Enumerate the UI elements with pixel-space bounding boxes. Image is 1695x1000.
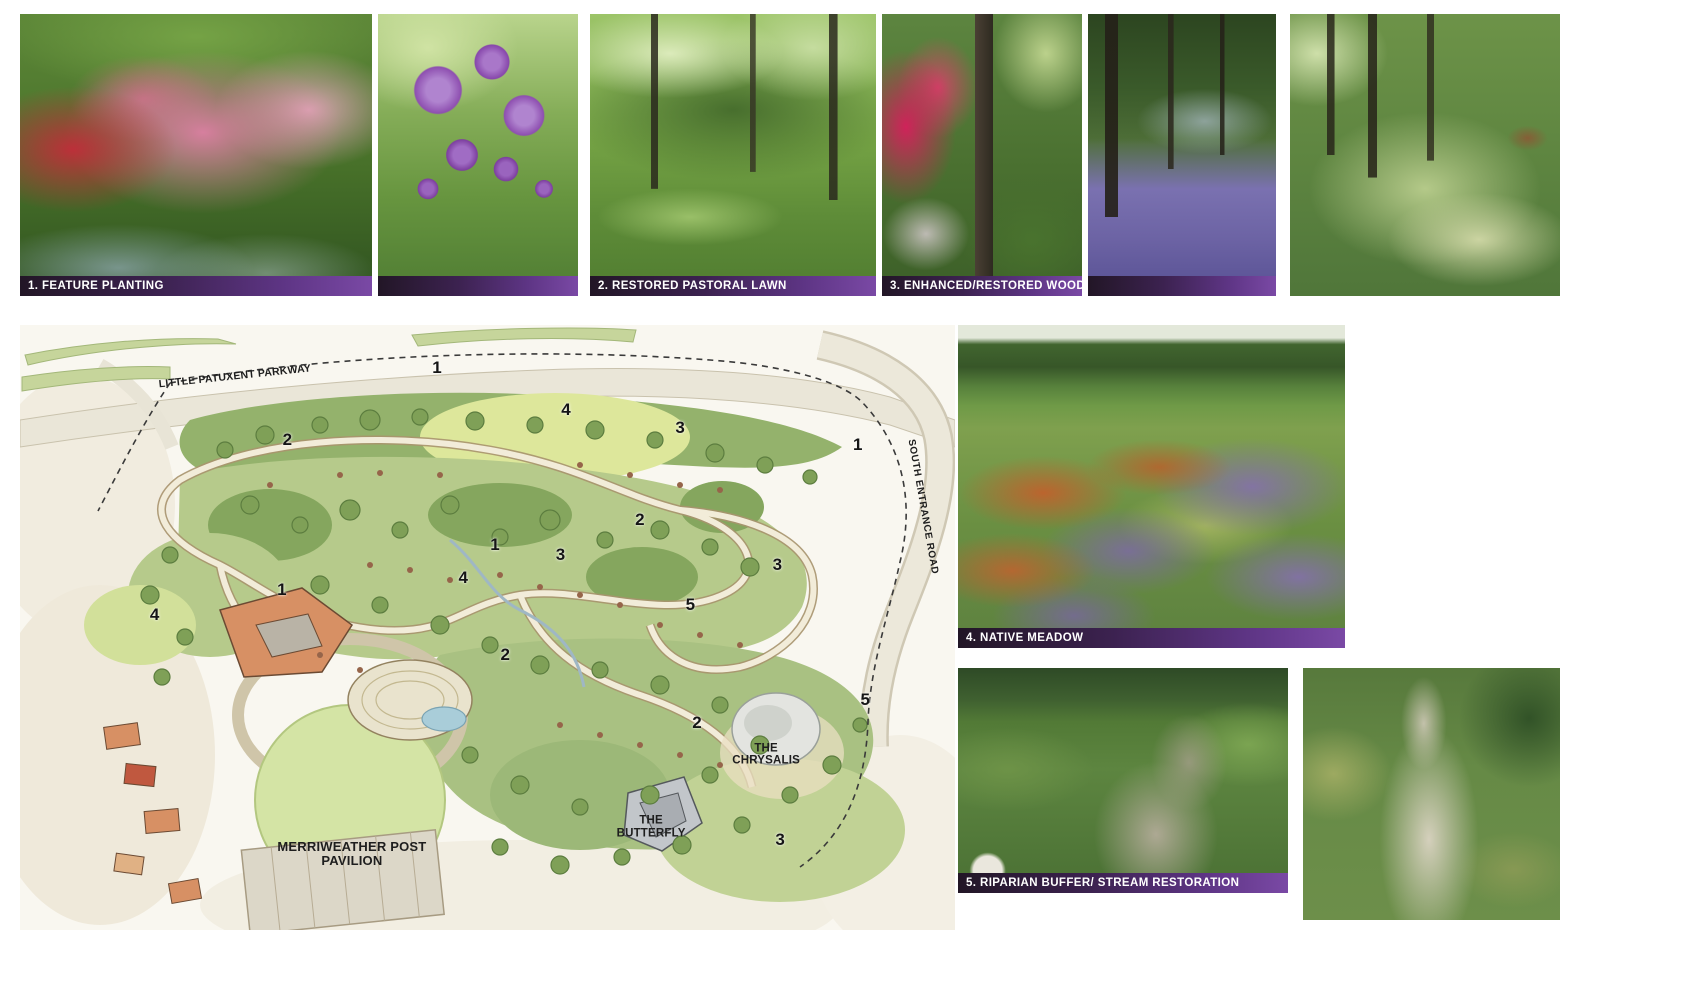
caption-native-meadow: 4. NATIVE MEADOW [958, 628, 1345, 648]
photo-allium [378, 14, 578, 296]
caption-woodland: 3. ENHANCED/RESTORED WOODLAND [882, 276, 1082, 296]
zone-marker: 2 [635, 510, 644, 530]
zone-marker: 3 [675, 418, 684, 438]
presentation-board: 1. FEATURE PLANTING 2. RESTORED PASTORAL… [0, 0, 1695, 1000]
photo-woodland: 3. ENHANCED/RESTORED WOODLAND [882, 14, 1082, 296]
zone-marker: 4 [561, 400, 570, 420]
zone-marker: 3 [556, 545, 565, 565]
photo-bluebell [1088, 14, 1276, 296]
zone-marker: 1 [432, 358, 441, 378]
zone-marker: 1 [490, 535, 499, 555]
site-plan: LITTLE PATUXENT PARKWAY SOUTH ENTRANCE R… [20, 325, 955, 930]
photo-stream-restoration [1303, 668, 1560, 920]
label-butterfly: THE BUTTERFLY [611, 815, 691, 840]
caption-riparian: 5. RIPARIAN BUFFER/ STREAM RESTORATION [958, 873, 1288, 893]
photo-feature-planting: 1. FEATURE PLANTING [20, 14, 372, 296]
zone-marker: 4 [458, 568, 467, 588]
zone-marker: 2 [501, 645, 510, 665]
zone-marker: 5 [686, 595, 695, 615]
zone-marker: 2 [283, 430, 292, 450]
zone-marker: 5 [861, 690, 870, 710]
zone-marker: 3 [775, 830, 784, 850]
zone-marker: 1 [853, 435, 862, 455]
photo-native-meadow: 4. NATIVE MEADOW [958, 325, 1345, 648]
zone-marker: 3 [773, 555, 782, 575]
caption-bluebell [1088, 276, 1276, 296]
zone-marker: 4 [150, 605, 159, 625]
zone-marker: 2 [692, 713, 701, 733]
photo-pastoral-lawn: 2. RESTORED PASTORAL LAWN [590, 14, 876, 296]
label-chrysalis: THE CHRYSALIS [726, 742, 806, 767]
caption-pastoral-lawn: 2. RESTORED PASTORAL LAWN [590, 276, 876, 296]
caption-feature-planting: 1. FEATURE PLANTING [20, 276, 372, 296]
label-pavilion: MERRIWEATHER POST PAVILION [277, 840, 427, 868]
photo-riparian: 5. RIPARIAN BUFFER/ STREAM RESTORATION [958, 668, 1288, 893]
caption-allium [378, 276, 578, 296]
photo-fern-woodland [1290, 14, 1560, 296]
zone-marker: 1 [277, 580, 286, 600]
site-plan-drawing [20, 325, 955, 930]
